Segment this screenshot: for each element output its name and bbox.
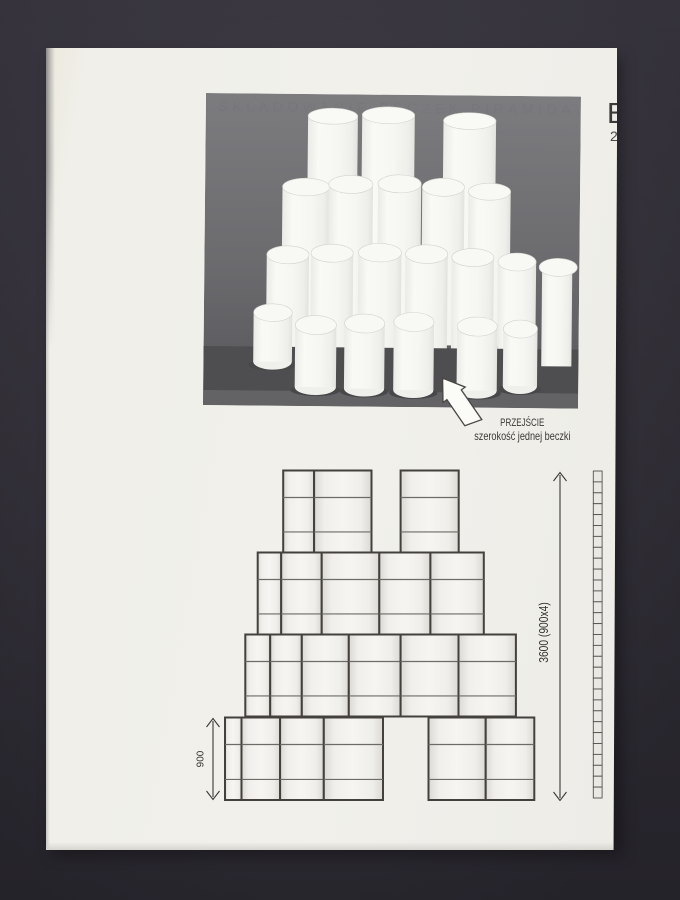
svg-text:3600 (900x4): 3600 (900x4) — [536, 602, 551, 663]
svg-text:900: 900 — [196, 750, 207, 767]
